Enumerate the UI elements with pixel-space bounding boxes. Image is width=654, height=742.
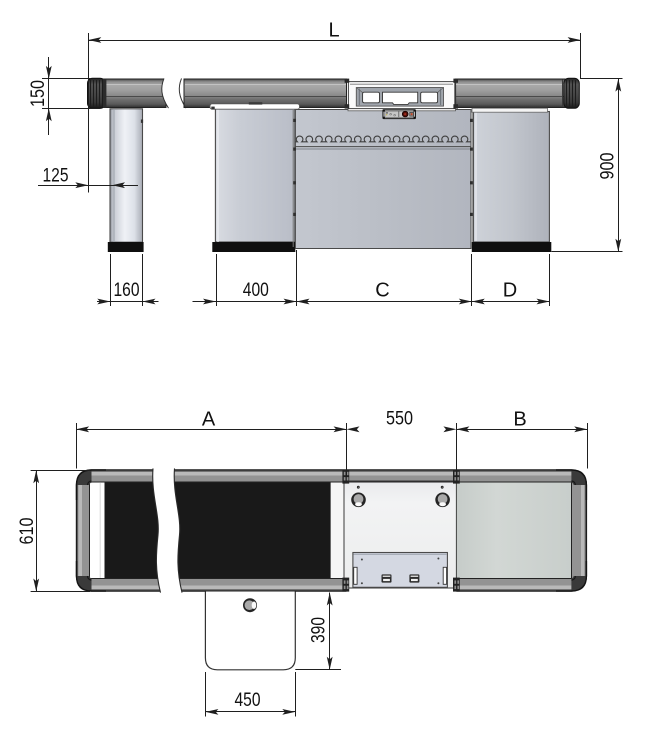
svg-text:610: 610 xyxy=(17,518,38,545)
svg-text:150: 150 xyxy=(28,80,49,107)
svg-text:550: 550 xyxy=(386,409,413,430)
svg-text:160: 160 xyxy=(114,280,140,301)
svg-text:A: A xyxy=(202,409,216,431)
svg-text:450: 450 xyxy=(235,690,261,711)
svg-text:900: 900 xyxy=(598,153,619,180)
svg-text:400: 400 xyxy=(243,280,269,301)
svg-text:D: D xyxy=(503,280,517,302)
svg-text:C: C xyxy=(375,280,389,302)
svg-text:125: 125 xyxy=(43,165,69,186)
svg-text:B: B xyxy=(513,409,526,431)
svg-text:L: L xyxy=(328,20,339,42)
svg-text:390: 390 xyxy=(309,617,330,643)
